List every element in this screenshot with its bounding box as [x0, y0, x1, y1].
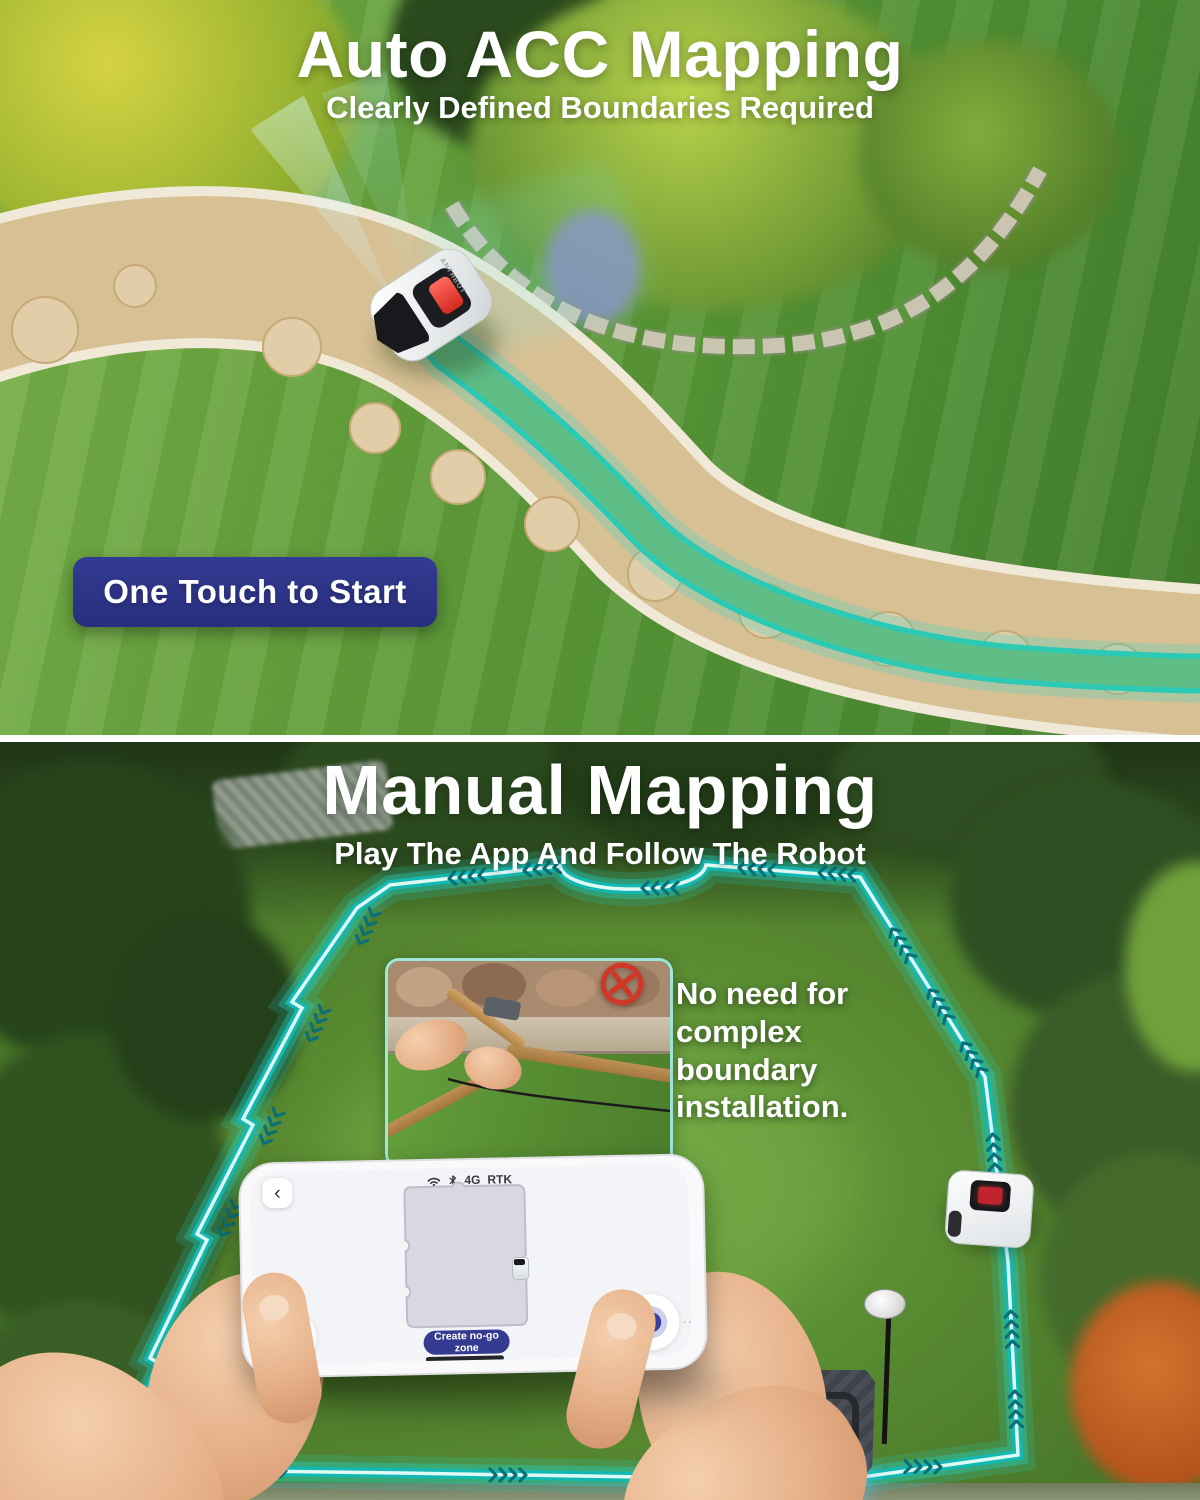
- no-entry-icon: [595, 957, 649, 1011]
- robot-body: [944, 1169, 1035, 1249]
- chevron-left-icon: ‹: [274, 1183, 281, 1203]
- auto-mapping-scene: ANTHBOT Auto ACC Mapping Clearly Defined…: [0, 0, 1200, 735]
- joystick-dots-right: ∙∙∙: [683, 1316, 692, 1328]
- robot-rear-panel: [969, 1180, 1011, 1213]
- robot-mower: ANTHBOT: [352, 240, 512, 390]
- back-button[interactable]: ‹: [262, 1178, 293, 1209]
- manual-mapping-scene: No need for complex boundary installatio…: [0, 742, 1200, 1500]
- thumb-nail: [604, 1310, 639, 1342]
- home-indicator: [426, 1355, 504, 1362]
- robot-mower-following: [933, 1164, 1043, 1263]
- create-no-go-zone-button[interactable]: Create no-go zone: [423, 1329, 509, 1355]
- robot-wheel: [947, 1210, 962, 1237]
- note-text: No need for complex boundary installatio…: [676, 975, 914, 1126]
- bottom-title: Manual Mapping: [0, 750, 1200, 830]
- map-robot-marker: [512, 1257, 529, 1280]
- page-canvas: ANTHBOT Auto ACC Mapping Clearly Defined…: [0, 0, 1200, 1500]
- bottom-subtitle: Play The App And Follow The Robot: [0, 836, 1200, 872]
- top-title: Auto ACC Mapping: [0, 16, 1200, 92]
- section-divider: [0, 735, 1200, 742]
- top-subtitle: Clearly Defined Boundaries Required: [0, 90, 1200, 126]
- robot-display: [978, 1186, 1003, 1205]
- thumb-nail: [257, 1292, 291, 1323]
- lamp-top: [864, 1289, 906, 1319]
- one-touch-start-button[interactable]: One Touch to Start: [73, 557, 437, 627]
- lawn-map[interactable]: [396, 1179, 533, 1334]
